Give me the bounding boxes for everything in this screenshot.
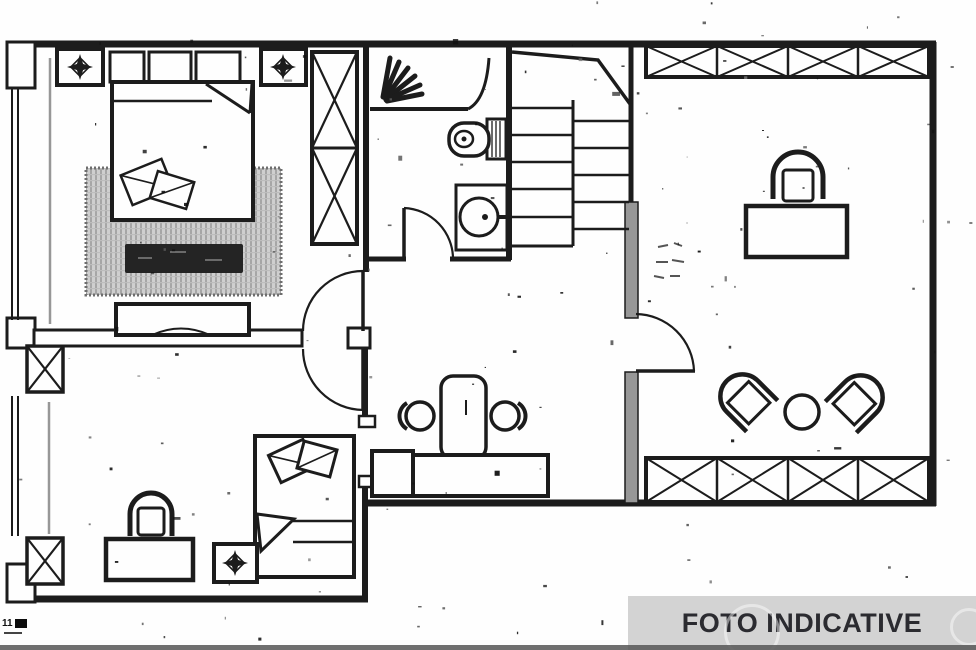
gray-wall-segment xyxy=(625,202,638,318)
banner-label: FOTO INDICATIVE xyxy=(682,608,923,639)
wardrobe-x-icon xyxy=(646,458,929,502)
armchair-icon xyxy=(711,365,777,431)
room-hallway xyxy=(372,376,548,496)
counter-icon xyxy=(413,455,548,496)
watermark-circle xyxy=(950,608,976,646)
room-master-bedroom xyxy=(57,49,357,335)
ceiling-light-icon xyxy=(261,49,306,85)
bar-table-icon xyxy=(441,376,486,459)
column-x-pilasters xyxy=(27,346,63,584)
dresser-icon xyxy=(116,304,249,335)
toilet-icon xyxy=(449,119,506,159)
artifact-number: 11 xyxy=(2,618,13,629)
photo-indicative-banner: FOTO INDICATIVE xyxy=(628,596,976,650)
stool-icon xyxy=(399,402,434,430)
office-chair-icon xyxy=(130,493,172,536)
door-jamb xyxy=(359,416,375,427)
desk-icon xyxy=(746,206,847,257)
footer-dark-bar xyxy=(0,645,976,650)
stairs-icon xyxy=(509,52,630,246)
sink-icon xyxy=(456,185,507,250)
door-swing-bathroom xyxy=(404,208,453,259)
wardrobe-x-icon xyxy=(646,46,929,77)
illegible-dimension-text xyxy=(654,243,684,278)
window-left-bedroom xyxy=(12,58,50,324)
room-bathroom xyxy=(383,58,507,250)
window-left-bottom-room xyxy=(12,396,49,536)
double-bed-icon xyxy=(110,52,253,220)
wardrobe-x-icon xyxy=(312,52,357,244)
room-office xyxy=(646,46,929,502)
artifact-dash xyxy=(4,632,22,634)
shower-spray-icon xyxy=(383,58,422,101)
door-swing-bottom-room xyxy=(303,349,363,410)
office-chair-icon xyxy=(773,152,823,201)
ceiling-light-icon xyxy=(214,544,257,582)
gray-wall-segment xyxy=(625,372,638,503)
floor-plan-page: FOTO INDICATIVE 11 xyxy=(0,0,976,650)
wall-corner-block xyxy=(7,42,35,88)
round-table-icon xyxy=(785,395,819,429)
artifact-blob xyxy=(15,619,27,628)
scan-artifact-text: 11 xyxy=(2,618,27,629)
desk-icon xyxy=(106,539,193,580)
single-bed-icon xyxy=(255,436,354,577)
room-second-bedroom xyxy=(106,436,354,582)
stool-icon xyxy=(491,402,526,430)
cabinet-icon xyxy=(372,451,413,496)
armchair-icon xyxy=(825,366,891,432)
door-swing-office xyxy=(636,314,695,371)
ceiling-light-icon xyxy=(57,49,103,85)
floor-plan-drawing xyxy=(0,0,976,650)
door-swing-bedroom xyxy=(303,271,363,331)
wall-mid-block xyxy=(7,318,35,348)
